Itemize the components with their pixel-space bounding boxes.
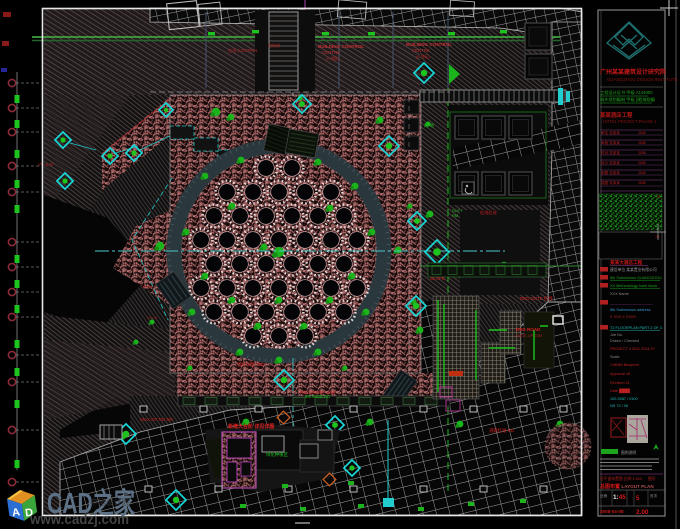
svg-text:2008: 2008 bbox=[638, 131, 646, 135]
svg-text:GUANGZHOU DESIGN INSTITUTE: GUANGZHOU DESIGN INSTITUTE bbox=[607, 77, 678, 82]
svg-text:SLOPE: SLOPE bbox=[430, 276, 445, 281]
svg-text:广州某某建筑设计研究院: 广州某某建筑设计研究院 bbox=[600, 68, 666, 76]
svg-text:(6 储区): (6 储区) bbox=[416, 53, 431, 59]
svg-text:审定 张某某: 审定 张某某 bbox=[601, 130, 620, 135]
svg-text:HOTEL PROJECT PHASE-1: HOTEL PROJECT PHASE-1 bbox=[603, 119, 657, 124]
svg-text:城乡规划编制 甲级 [建]城规编: 城乡规划编制 甲级 [建]城规编 bbox=[600, 96, 655, 103]
svg-text:BUILDING CONTROL: BUILDING CONTROL bbox=[318, 44, 364, 49]
svg-text:6M WIDE RD: 6M WIDE RD bbox=[305, 394, 330, 399]
svg-text:CL=X: CL=X bbox=[147, 315, 157, 320]
svg-text:总图布置 LAYOUT PLAN: 总图布置 LAYOUT PLAN bbox=[600, 483, 654, 490]
svg-text:VT=2.97: VT=2.97 bbox=[38, 162, 55, 167]
svg-text:1:45: 1:45 bbox=[613, 494, 626, 501]
svg-text:绿化种植区: 绿化种植区 bbox=[266, 451, 289, 458]
svg-text:某某大酒店工程: 某某大酒店工程 bbox=[609, 259, 643, 266]
svg-text:2008: 2008 bbox=[638, 141, 646, 145]
svg-text:Revision 21: Revision 21 bbox=[610, 381, 630, 385]
svg-text:RM: RM bbox=[452, 213, 458, 218]
svg-text:图例说明: 图例说明 bbox=[621, 450, 636, 455]
svg-text:设计 张某某: 设计 张某某 bbox=[601, 160, 620, 165]
svg-text:某某酒店工程: 某某酒店工程 bbox=[600, 111, 633, 119]
svg-text:页次: 页次 bbox=[650, 493, 658, 498]
svg-text:7A: 7A bbox=[655, 235, 660, 239]
svg-text:____________________: ____________________ bbox=[609, 301, 653, 305]
svg-text:校对 张某某: 校对 张某某 bbox=[601, 150, 620, 155]
svg-text:BUILDING CONTROL: BUILDING CONTROL bbox=[406, 42, 452, 47]
svg-text:(6 储区): (6 储区) bbox=[326, 55, 341, 61]
svg-text:红线 CONTROL: 红线 CONTROL bbox=[228, 47, 259, 53]
svg-text:7A: 7A bbox=[656, 195, 661, 199]
svg-text:2008-04-08: 2008-04-08 bbox=[600, 509, 624, 514]
svg-text:2008: 2008 bbox=[638, 161, 646, 165]
svg-text:Drawn / Checked: Drawn / Checked bbox=[610, 339, 639, 343]
svg-text:图号: 图号 bbox=[648, 476, 656, 481]
svg-text:控制线: 控制线 bbox=[268, 42, 280, 48]
svg-text:NS 72 / 08: NS 72 / 08 bbox=[610, 404, 628, 408]
svg-text:总平面布置图 比例 1:500: 总平面布置图 比例 1:500 bbox=[600, 476, 642, 481]
svg-text:审核 张某某: 审核 张某某 bbox=[601, 140, 620, 145]
svg-text:2.00: 2.00 bbox=[636, 509, 649, 516]
svg-text:道路红线 RD: 道路红线 RD bbox=[489, 427, 514, 434]
svg-text:XXX Name: XXX Name bbox=[610, 292, 629, 296]
svg-text:内 地: 内 地 bbox=[424, 122, 435, 129]
svg-text:新增大台阶 详见详图: 新增大台阶 详见详图 bbox=[228, 423, 274, 430]
svg-text:中国设计院: 中国设计院 bbox=[90, 497, 130, 507]
svg-text:台阶详图 TBD: 台阶详图 TBD bbox=[237, 361, 265, 368]
svg-text:描图 张某某: 描图 张某某 bbox=[601, 180, 620, 185]
svg-text:X XXX X XXXX: X XXX X XXXX bbox=[610, 315, 636, 319]
svg-text:5th Submission address: 5th Submission address bbox=[610, 308, 651, 312]
svg-text:2008: 2008 bbox=[638, 171, 646, 175]
svg-text:www.cadzj.com: www.cadzj.com bbox=[29, 511, 129, 528]
svg-text:5th Submission GUANGZHOU: 5th Submission GUANGZHOU bbox=[610, 276, 662, 280]
svg-text:T2 FLOORPLAN PART 2 OF 3: T2 FLOORPLAN PART 2 OF 3 bbox=[610, 326, 662, 330]
svg-text:R=XX: R=XX bbox=[143, 284, 154, 289]
svg-text:CENTRE: CENTRE bbox=[412, 48, 430, 53]
svg-text:2008: 2008 bbox=[638, 181, 646, 185]
svg-text:比例: 比例 bbox=[600, 493, 608, 498]
svg-text:Scale: Scale bbox=[610, 355, 620, 359]
svg-text:RED NOTE 红线: RED NOTE 红线 bbox=[520, 295, 553, 301]
svg-text:红线后退: 红线后退 bbox=[480, 209, 498, 216]
svg-text:XX Methodology hotel block: XX Methodology hotel block bbox=[610, 284, 657, 288]
svg-text:PROJECT 4 2011 2014-07: PROJECT 4 2011 2014-07 bbox=[610, 347, 655, 351]
svg-text:100-0087 / 0100: 100-0087 / 0100 bbox=[610, 397, 638, 401]
svg-text:Approval 45: Approval 45 bbox=[610, 372, 630, 376]
svg-text:MAX DT RD 5M: MAX DT RD 5M bbox=[140, 417, 173, 422]
svg-text:工程设计证书 甲级 A144000: 工程设计证书 甲级 A144000 bbox=[600, 89, 653, 96]
svg-text:1:MMM Blueprint: 1:MMM Blueprint bbox=[610, 363, 640, 367]
svg-text:2008: 2008 bbox=[638, 151, 646, 155]
svg-text:RED ROAD: RED ROAD bbox=[516, 327, 541, 332]
svg-text:WIDE-UP 22M: WIDE-UP 22M bbox=[516, 333, 542, 338]
svg-text:建设单位 某某置业有限公司: 建设单位 某某置业有限公司 bbox=[610, 267, 657, 272]
svg-text:制图 张某某: 制图 张某某 bbox=[601, 170, 620, 175]
svg-text:CENTRE: CENTRE bbox=[322, 50, 340, 55]
svg-text:Job No.: Job No. bbox=[610, 333, 623, 337]
